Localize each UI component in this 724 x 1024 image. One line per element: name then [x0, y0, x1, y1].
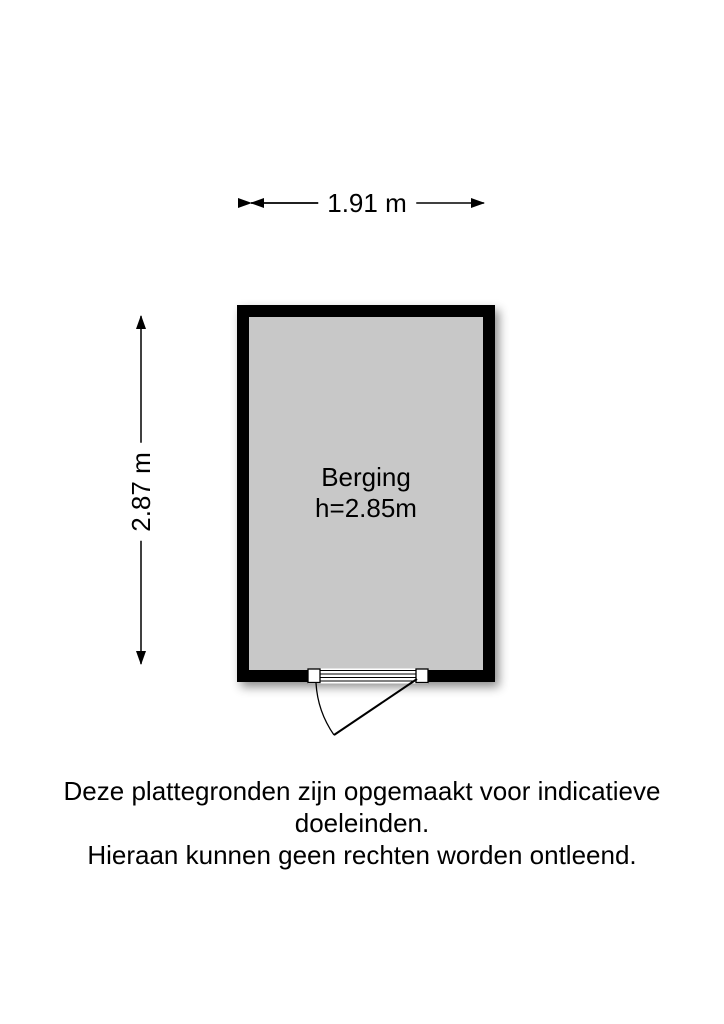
disclaimer-line-1: Deze plattegronden zijn opgemaakt voor i…: [0, 775, 724, 839]
floorplan-canvas: 1.91 m 2.87 m Berging h=2.85m Deze platt…: [0, 0, 724, 1024]
room-ceiling-height-label: h=2.85m: [237, 493, 495, 524]
room-labels: Berging h=2.85m: [237, 462, 495, 524]
door-leaf: [334, 679, 417, 735]
door-jamb-right: [416, 669, 428, 683]
height-dimension-label: 2.87 m: [126, 443, 156, 541]
door: [308, 669, 428, 736]
door-jamb-left: [308, 669, 320, 683]
door-swing-arc: [316, 683, 334, 735]
room-name-label: Berging: [237, 462, 495, 493]
width-dimension-label: 1.91 m: [318, 188, 416, 218]
disclaimer-line-2: Hieraan kunnen geen rechten worden ontle…: [0, 839, 724, 871]
disclaimer-text: Deze plattegronden zijn opgemaakt voor i…: [0, 775, 724, 871]
